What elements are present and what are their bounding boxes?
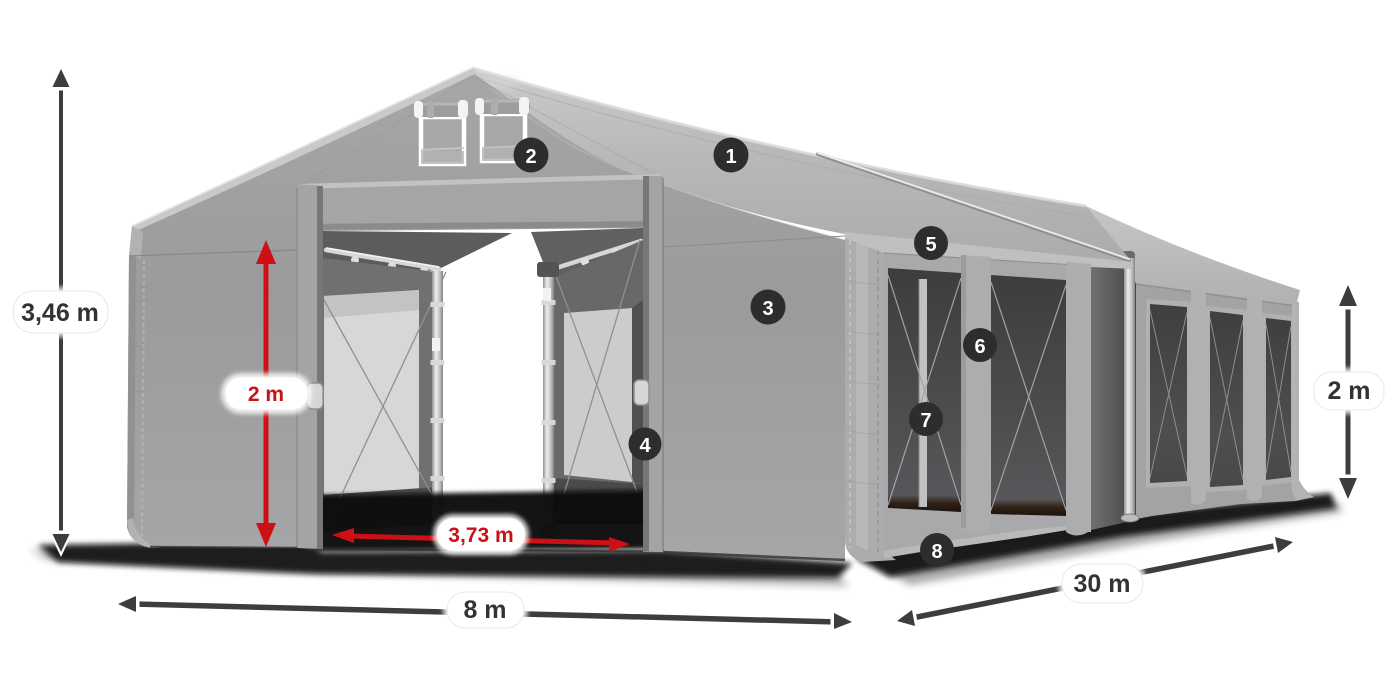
svg-text:3: 3 (762, 298, 773, 320)
svg-text:1: 1 (725, 146, 736, 168)
svg-text:4: 4 (639, 435, 651, 457)
svg-text:2 m: 2 m (1327, 377, 1370, 405)
svg-text:6: 6 (974, 336, 985, 358)
svg-text:2: 2 (525, 146, 536, 168)
svg-text:8 m: 8 m (463, 596, 506, 624)
svg-text:3,73 m: 3,73 m (448, 524, 513, 547)
svg-text:5: 5 (925, 234, 936, 256)
svg-text:7: 7 (920, 410, 931, 432)
svg-text:3,46 m: 3,46 m (21, 299, 99, 327)
svg-text:2 m: 2 m (248, 383, 284, 406)
svg-text:8: 8 (931, 541, 942, 563)
svg-text:30 m: 30 m (1074, 570, 1131, 598)
